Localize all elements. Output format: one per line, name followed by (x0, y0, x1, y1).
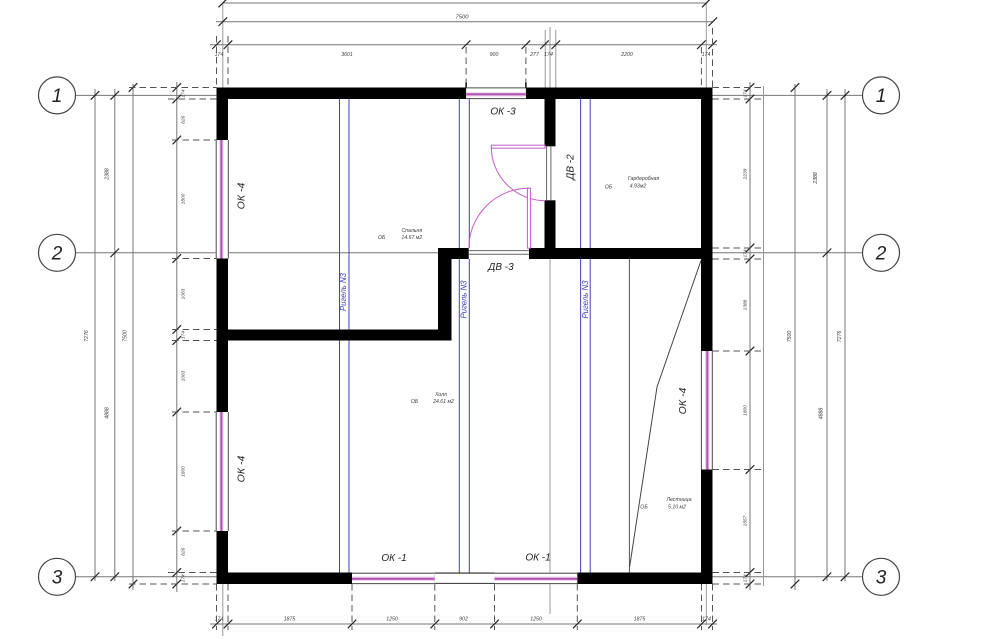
svg-text:174: 174 (702, 52, 711, 58)
svg-text:ОБ: ОБ (640, 505, 648, 511)
svg-text:ОК -4: ОК -4 (236, 183, 248, 210)
svg-text:5.10 м2: 5.10 м2 (668, 505, 686, 511)
svg-text:1800: 1800 (181, 466, 187, 477)
svg-text:2239: 2239 (743, 168, 749, 180)
svg-text:ОК -4: ОК -4 (677, 388, 689, 415)
svg-text:7276: 7276 (837, 331, 843, 343)
svg-text:4.93м2: 4.93м2 (630, 184, 647, 190)
svg-text:174: 174 (743, 89, 749, 97)
svg-text:Холл: Холл (434, 392, 447, 398)
svg-text:7500: 7500 (787, 331, 793, 343)
svg-text:2388: 2388 (105, 168, 111, 181)
svg-text:626: 626 (181, 547, 187, 555)
svg-text:1800: 1800 (743, 405, 749, 416)
svg-text:1875: 1875 (634, 617, 646, 623)
svg-text:1250: 1250 (386, 617, 398, 623)
svg-text:7276: 7276 (84, 330, 90, 342)
svg-text:1063: 1063 (181, 370, 187, 381)
svg-text:1800: 1800 (181, 193, 187, 204)
svg-text:ОК -3: ОК -3 (490, 107, 516, 118)
svg-text:7500: 7500 (123, 330, 129, 342)
svg-text:174: 174 (215, 52, 224, 58)
svg-text:900: 900 (490, 52, 499, 58)
svg-text:2200: 2200 (620, 52, 633, 58)
svg-text:174: 174 (702, 617, 711, 623)
svg-text:1: 1 (52, 86, 63, 107)
svg-text:Гардеробная: Гардеробная (628, 176, 660, 182)
svg-text:174: 174 (743, 249, 749, 257)
svg-text:1388: 1388 (743, 299, 749, 310)
svg-text:174: 174 (743, 574, 749, 582)
svg-text:1875: 1875 (284, 617, 296, 623)
svg-text:174: 174 (181, 89, 187, 97)
svg-text:ОК -1: ОК -1 (381, 553, 406, 564)
svg-text:174: 174 (181, 574, 187, 582)
svg-text:Ригель N3: Ригель N3 (460, 280, 469, 319)
svg-text:3: 3 (876, 568, 887, 589)
svg-text:ОБ: ОБ (411, 399, 419, 405)
svg-text:277: 277 (529, 52, 540, 58)
svg-text:14.67 м2: 14.67 м2 (401, 235, 422, 241)
svg-text:2388: 2388 (813, 172, 819, 185)
svg-text:ДВ -2: ДВ -2 (566, 154, 577, 181)
svg-text:3601: 3601 (341, 52, 353, 58)
svg-text:ОБ: ОБ (378, 235, 386, 241)
svg-text:1557: 1557 (743, 515, 749, 526)
svg-text:Спальня: Спальня (401, 228, 422, 234)
svg-text:Лестница: Лестница (666, 497, 692, 503)
svg-text:902: 902 (459, 617, 468, 623)
svg-text:626: 626 (181, 115, 187, 123)
svg-text:Ригель N3: Ригель N3 (339, 272, 348, 311)
svg-text:2: 2 (875, 244, 887, 265)
svg-text:ОК -4: ОК -4 (236, 456, 248, 483)
svg-text:1250: 1250 (530, 617, 542, 623)
svg-text:4888: 4888 (105, 407, 111, 419)
svg-text:174: 174 (215, 617, 224, 623)
svg-text:4888: 4888 (819, 408, 825, 420)
svg-text:ДВ -3: ДВ -3 (487, 262, 514, 273)
svg-text:174: 174 (544, 52, 553, 58)
svg-text:1063: 1063 (181, 288, 187, 299)
svg-text:1: 1 (876, 86, 887, 107)
svg-text:174: 174 (181, 331, 187, 339)
svg-text:ОБ: ОБ (605, 185, 613, 191)
svg-text:7500: 7500 (456, 15, 470, 21)
svg-text:2: 2 (51, 244, 63, 265)
svg-text:3: 3 (52, 568, 63, 589)
svg-text:Ригель N3: Ригель N3 (581, 280, 590, 319)
svg-text:ОК -1: ОК -1 (525, 553, 550, 564)
svg-text:24.61 м2: 24.61 м2 (432, 399, 454, 405)
